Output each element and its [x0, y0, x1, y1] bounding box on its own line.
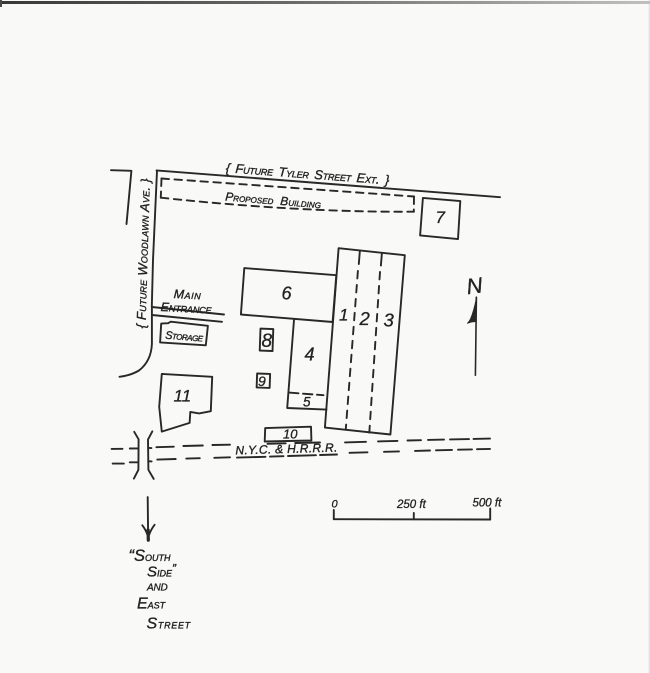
svg-text:Entrance: Entrance: [160, 300, 213, 317]
svg-text:6: 6: [282, 284, 293, 304]
svg-text:3: 3: [384, 310, 395, 331]
svg-text:4: 4: [305, 345, 315, 365]
svg-text:500 ft: 500 ft: [473, 498, 503, 510]
svg-text:2: 2: [359, 308, 371, 329]
svg-text:“South: “South: [129, 547, 171, 565]
svg-text:8: 8: [262, 331, 273, 352]
svg-text:East: East: [137, 596, 167, 613]
svg-text:Street: Street: [147, 616, 192, 633]
svg-text:AND: AND: [146, 583, 168, 594]
svg-text:10: 10: [283, 427, 298, 442]
svg-text:7: 7: [436, 208, 446, 227]
svg-text:250 ft: 250 ft: [396, 499, 427, 511]
svg-text:9: 9: [258, 373, 266, 389]
svg-text:1: 1: [339, 306, 348, 325]
svg-text:11: 11: [174, 387, 192, 406]
svg-text:5: 5: [303, 395, 311, 410]
svg-text:N: N: [465, 272, 484, 299]
svg-text:0: 0: [332, 499, 339, 511]
